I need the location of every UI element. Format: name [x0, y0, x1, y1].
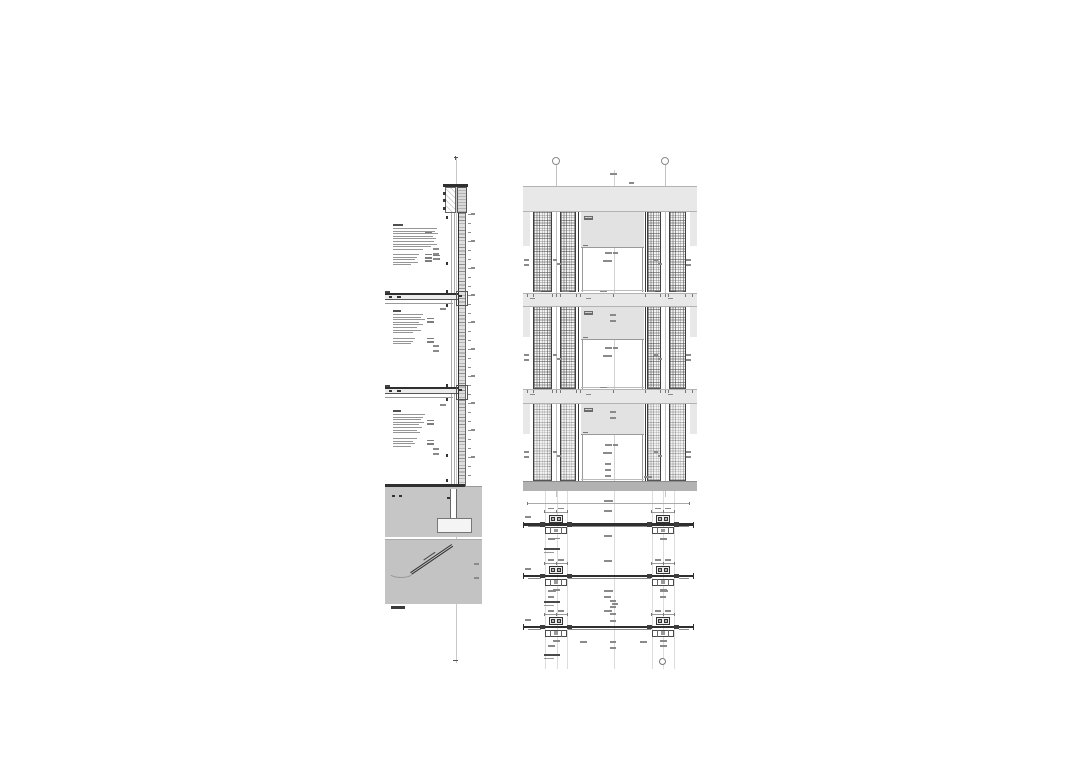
bracket-rib	[561, 630, 562, 637]
bracket-rib	[561, 579, 562, 586]
detail-label	[544, 601, 560, 603]
dim-tick	[663, 613, 664, 616]
micro-text	[548, 645, 555, 647]
mullion-cap-cell	[551, 517, 555, 521]
detail-label	[544, 548, 560, 550]
mullion-pad	[647, 522, 652, 526]
dim-tick	[556, 562, 557, 565]
bracket-rib	[550, 579, 551, 586]
plan-end-tick	[523, 573, 524, 579]
mullion-cap-cell	[664, 619, 668, 623]
detail-label-sub	[544, 605, 554, 606]
dim-tick	[674, 613, 675, 616]
mullion-cap-cell	[551, 568, 555, 572]
plan-glass-line	[568, 526, 651, 527]
bracket-rib	[657, 579, 658, 586]
bracket-rib	[657, 630, 658, 637]
micro-text	[548, 590, 556, 592]
dim-tick	[527, 502, 528, 505]
mullion-pad	[567, 574, 572, 578]
micro-text	[548, 538, 555, 540]
mullion-cap-cell	[664, 568, 668, 572]
micro-text	[610, 600, 616, 602]
bracket-core	[554, 580, 558, 584]
plan-wall-line	[523, 626, 693, 628]
plan-end-tick	[523, 522, 524, 528]
mullion-cap-cell	[551, 619, 555, 623]
bracket-rib	[668, 630, 669, 637]
mullion-pad	[540, 522, 545, 526]
micro-text	[604, 510, 612, 512]
dim-tick	[544, 613, 545, 616]
bracket-core	[554, 631, 558, 635]
micro-text	[525, 516, 531, 518]
construction-line	[567, 491, 568, 669]
dim-tick	[567, 613, 568, 616]
dim-tick	[651, 613, 652, 616]
mullion-pad	[567, 625, 572, 629]
micro-text	[548, 508, 554, 510]
bracket-core	[554, 529, 558, 533]
dim-tick	[689, 502, 690, 505]
micro-text	[548, 596, 554, 598]
dim-tick	[544, 510, 545, 513]
mullion-pad	[540, 574, 545, 578]
micro-text	[604, 500, 613, 502]
micro-text	[558, 610, 564, 612]
plan-glass-line	[679, 526, 689, 527]
dim-tick	[556, 510, 557, 513]
micro-text	[610, 620, 616, 622]
micro-text	[548, 559, 554, 561]
bracket-core	[661, 580, 665, 584]
bracket-core	[661, 631, 665, 635]
micro-text	[610, 613, 616, 615]
mullion-pad	[540, 625, 545, 629]
mullion-cap-cell	[557, 517, 561, 521]
dim-tick	[651, 510, 652, 513]
micro-text	[660, 645, 667, 647]
mullion-pad	[674, 522, 679, 526]
plan-end-tick	[693, 522, 694, 528]
micro-text	[610, 641, 616, 643]
bracket-rib	[561, 527, 562, 534]
dim-tick	[674, 562, 675, 565]
mullion-pad	[647, 625, 652, 629]
detail-ref-bubble	[659, 658, 666, 665]
construction-line	[674, 491, 675, 669]
plan-glass-line	[568, 629, 651, 630]
micro-text	[655, 559, 661, 561]
mullion-cap-cell	[658, 517, 662, 521]
mullion-pad	[674, 625, 679, 629]
micro-text	[604, 596, 611, 598]
micro-text	[558, 559, 564, 561]
micro-text	[610, 606, 616, 608]
micro-text	[660, 640, 667, 642]
micro-text	[604, 590, 613, 592]
dim-tick	[663, 510, 664, 513]
micro-text	[558, 508, 564, 510]
micro-text	[665, 508, 671, 510]
micro-text	[660, 596, 666, 598]
bracket-rib	[550, 630, 551, 637]
micro-text	[665, 610, 671, 612]
dim-tick	[567, 562, 568, 565]
detail-label-sub	[544, 552, 554, 553]
bracket-rib	[657, 527, 658, 534]
plan-wall-line	[523, 575, 693, 577]
micro-text	[640, 641, 647, 643]
micro-text	[612, 603, 618, 605]
bracket-rib	[668, 579, 669, 586]
mullion-cap-cell	[557, 568, 561, 572]
dim-tick	[556, 613, 557, 616]
dim-tick	[651, 562, 652, 565]
dim-tick	[674, 510, 675, 513]
micro-text	[655, 508, 661, 510]
micro-text	[525, 619, 531, 621]
bracket-rib	[550, 527, 551, 534]
plan-details-figure	[0, 0, 1080, 764]
micro-text	[665, 559, 671, 561]
dim-tick	[567, 510, 568, 513]
detail-dim-line	[527, 503, 689, 504]
micro-text	[610, 647, 616, 649]
micro-text	[660, 590, 668, 592]
bracket-core	[661, 529, 665, 533]
micro-text	[655, 610, 661, 612]
mullion-cap-cell	[658, 619, 662, 623]
micro-text	[525, 568, 531, 570]
plan-glass-line	[679, 629, 689, 630]
dim-tick	[663, 562, 664, 565]
mullion-pad	[647, 574, 652, 578]
detail-label-sub	[544, 658, 554, 659]
plan-end-tick	[693, 624, 694, 630]
plan-wall-line	[523, 523, 693, 525]
plan-end-tick	[693, 573, 694, 579]
mullion-cap-cell	[557, 619, 561, 623]
drawing-canvas	[0, 0, 1080, 764]
detail-label	[544, 654, 560, 656]
mullion-pad	[567, 522, 572, 526]
mullion-cap-cell	[664, 517, 668, 521]
micro-text	[604, 560, 612, 562]
mullion-cap-cell	[658, 568, 662, 572]
micro-text	[660, 538, 667, 540]
plan-end-tick	[523, 624, 524, 630]
micro-text	[604, 610, 612, 612]
bracket-rib	[668, 527, 669, 534]
micro-text	[548, 610, 554, 612]
micro-text	[580, 641, 587, 643]
plan-glass-line	[679, 578, 689, 579]
mullion-pad	[674, 574, 679, 578]
dim-tick	[544, 562, 545, 565]
plan-glass-line	[568, 578, 651, 579]
micro-text	[604, 535, 612, 537]
micro-text	[553, 640, 560, 642]
